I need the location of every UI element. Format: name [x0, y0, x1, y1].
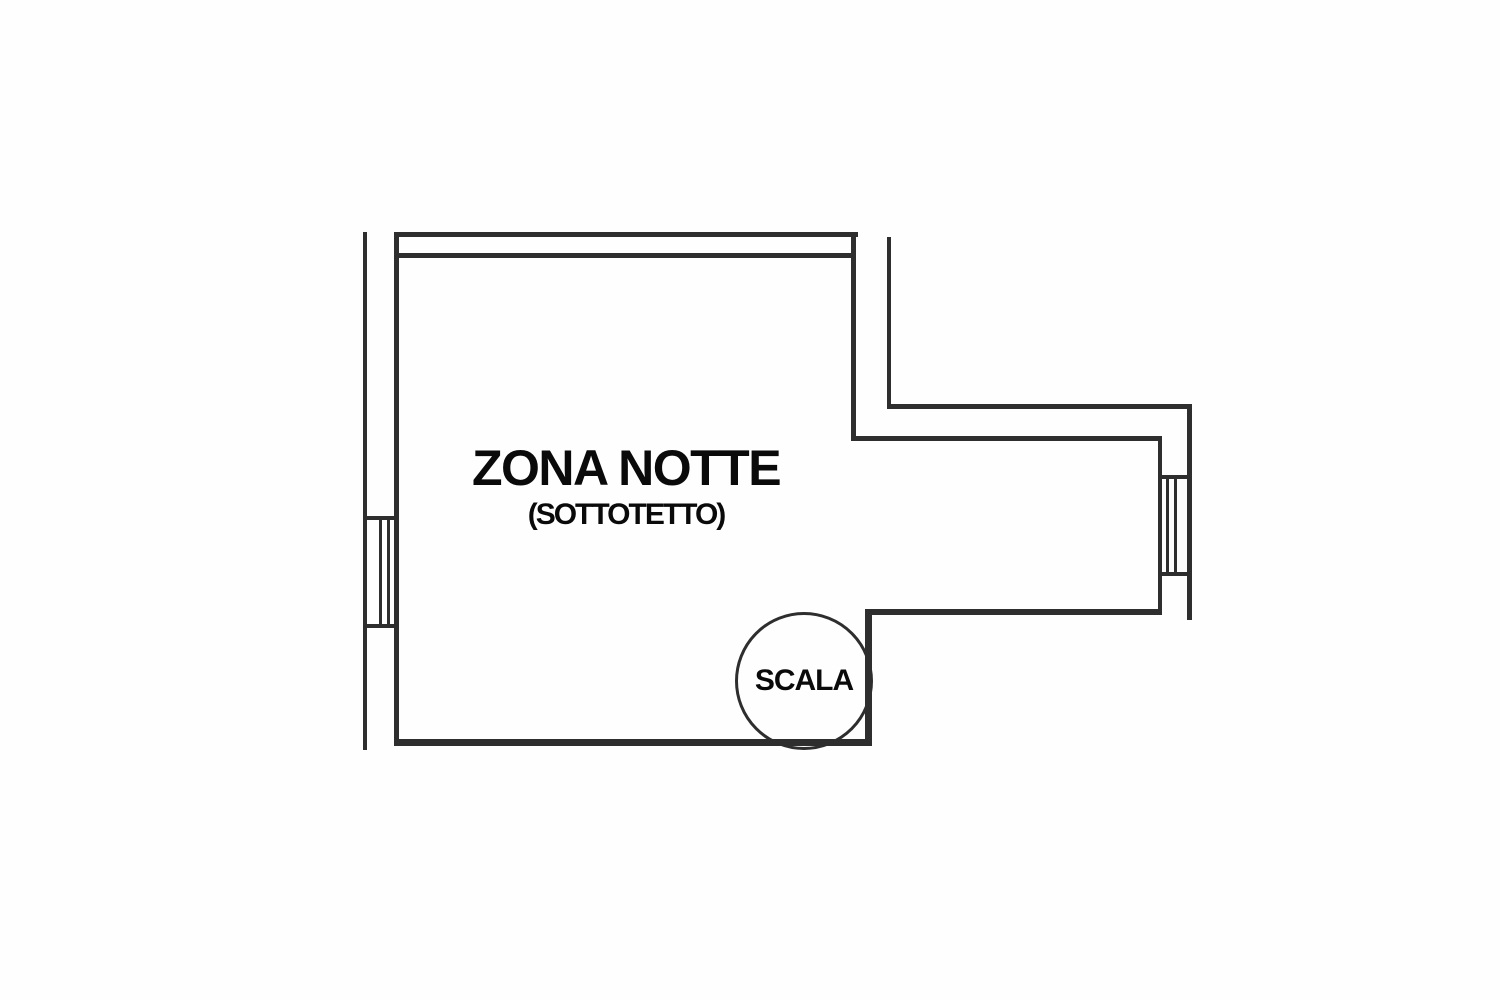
left-window-glass-line-1: [379, 518, 382, 626]
room-right-outer-line: [887, 237, 891, 408]
corridor-right-inner-line: [1158, 436, 1162, 615]
corridor-top-outer-line: [887, 404, 1192, 409]
top-wall-inner-line: [394, 253, 856, 258]
left-window-glass-line-2: [387, 518, 390, 626]
staircase-circle: SCALA: [735, 612, 873, 750]
floor-plan-drawing: SCALA ZONA NOTTE (SOTTOTETTO): [0, 0, 1500, 1000]
top-wall-outer-line: [394, 232, 858, 237]
right-window-glass-line-2: [1174, 477, 1177, 574]
corridor-top-inner-line: [851, 436, 1162, 441]
room-label: ZONA NOTTE: [366, 441, 886, 496]
corridor-bottom-wall: [866, 609, 1162, 615]
room-sublabel: (SOTTOTETTO): [423, 498, 829, 531]
staircase-label: SCALA: [755, 664, 853, 698]
right-window-glass-line-1: [1166, 477, 1169, 574]
corridor-right-outer-line: [1187, 404, 1192, 620]
floor-plan-page: SCALA ZONA NOTTE (SOTTOTETTO): [0, 0, 1500, 1000]
room-right-inner-line: [851, 235, 856, 441]
